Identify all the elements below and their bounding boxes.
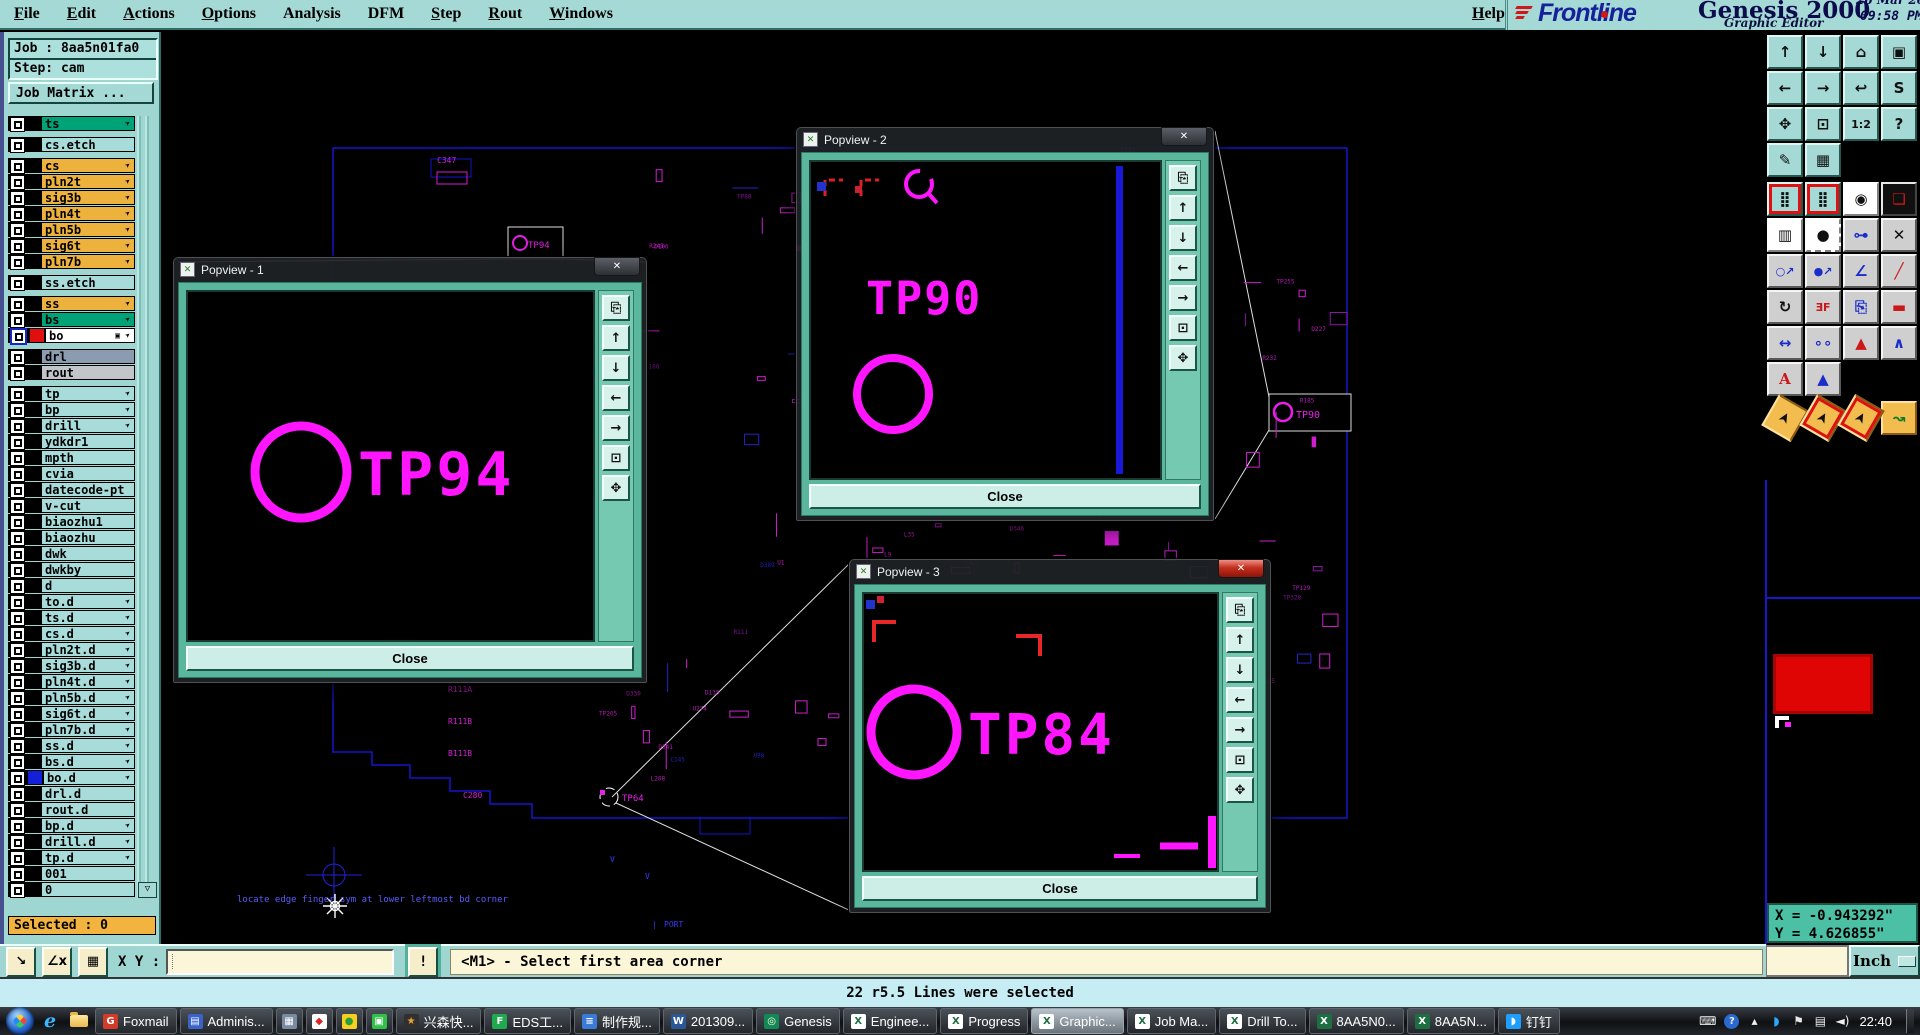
previous-view-button[interactable]: ↩ — [1843, 71, 1879, 105]
layer-row-sig6t.d[interactable]: sig6t.d➤ — [8, 706, 135, 721]
action-center-icon[interactable]: ⚑ — [1791, 1013, 1805, 1029]
layer-color-chip[interactable] — [27, 174, 41, 189]
layer-color-chip[interactable] — [27, 296, 41, 311]
layer-row-pln2t[interactable]: pln2t➤ — [8, 174, 135, 189]
zoom-in-button[interactable]: ⊡ — [1805, 107, 1841, 141]
pan-down-icon[interactable]: ↓ — [602, 355, 630, 381]
popview-2-titlebar[interactable]: ✕ Popview - 2 ✕ — [801, 127, 1209, 152]
layer-row-bp[interactable]: bp➤ — [8, 402, 135, 417]
detach-view-icon[interactable]: ⎘ — [1226, 597, 1254, 623]
layer-color-chip[interactable] — [27, 610, 41, 625]
layer-row-pln7b[interactable]: pln7b➤ — [8, 254, 135, 269]
layer-checkbox[interactable] — [10, 835, 25, 850]
pan-left-icon[interactable]: ← — [1169, 255, 1197, 281]
close-window-icon[interactable]: ✕ — [1218, 559, 1264, 578]
menu-item-step[interactable]: Step — [431, 5, 461, 23]
layer-row-pln5b.d[interactable]: pln5b.d➤ — [8, 690, 135, 705]
layer-color-chip[interactable] — [27, 850, 41, 865]
task-eds[interactable]: FEDS工... — [484, 1008, 571, 1034]
layer-color-chip[interactable] — [27, 434, 41, 449]
layer-checkbox[interactable] — [10, 451, 25, 466]
layer-row-cs[interactable]: cs➤ — [8, 158, 135, 173]
layer-row-bs[interactable]: bs➤ — [8, 312, 135, 327]
layer-row-v-cut[interactable]: v-cut — [8, 498, 135, 513]
layer-name[interactable]: 001 — [41, 866, 135, 881]
layer-row-rout[interactable]: rout — [8, 365, 135, 380]
layer-name[interactable]: datecode-pt — [41, 482, 135, 497]
task-foxmail[interactable]: GFoxmail — [95, 1008, 177, 1034]
layer-color-chip[interactable] — [27, 365, 41, 380]
layer-checkbox[interactable] — [10, 297, 25, 312]
help-tray-icon[interactable]: ? — [1724, 1014, 1739, 1029]
layer-color-chip[interactable] — [27, 658, 41, 673]
layer-row-bo[interactable]: bo➤▣ — [8, 328, 135, 343]
task-excel-progress[interactable]: XProgress — [940, 1008, 1028, 1034]
layer-checkbox[interactable] — [10, 771, 25, 786]
zoom-in-icon[interactable]: ⊡ — [1169, 315, 1197, 341]
layer-color-chip[interactable] — [27, 594, 41, 609]
layer-color-chip[interactable] — [27, 578, 41, 593]
units-toggle-button[interactable]: Inch — [1849, 945, 1920, 977]
select-pad-button[interactable]: ● — [1805, 218, 1841, 252]
layer-name[interactable]: tp.d➤ — [41, 850, 135, 865]
zoom-ratio-button[interactable]: 1:2 — [1843, 107, 1879, 141]
layer-checkbox[interactable] — [10, 579, 25, 594]
layer-checkbox[interactable] — [10, 595, 25, 610]
layer-name[interactable]: ts➤ — [41, 116, 135, 131]
zoom-in-icon[interactable]: ⊡ — [602, 445, 630, 471]
layer-name[interactable]: to.d➤ — [41, 594, 135, 609]
copy-to-layer-button[interactable]: ◉ — [1843, 182, 1879, 216]
layer-color-chip[interactable] — [27, 834, 41, 849]
popview-3-window[interactable]: ✕ Popview - 3 ✕ TP84 ⎘↑↓←→⊡✥ Close — [848, 558, 1272, 914]
layer-color-chip[interactable] — [27, 349, 41, 364]
layer-name[interactable]: sig6t.d➤ — [41, 706, 135, 721]
layer-row-pln5b[interactable]: pln5b➤ — [8, 222, 135, 237]
layer-row-ydkdr1[interactable]: ydkdr1 — [8, 434, 135, 449]
layer-color-chip[interactable] — [27, 254, 41, 269]
text-tool-button[interactable]: A — [1767, 362, 1803, 396]
menu-item-actions[interactable]: Actions — [123, 5, 175, 23]
layer-row-cvia[interactable]: cvia — [8, 466, 135, 481]
layer-checkbox[interactable] — [10, 643, 25, 658]
layer-name[interactable]: pln2t.d➤ — [41, 642, 135, 657]
layer-checkbox[interactable] — [10, 659, 25, 674]
layer-checkbox[interactable] — [10, 207, 25, 222]
layer-color-chip[interactable] — [27, 546, 41, 561]
layer-checkbox[interactable] — [10, 531, 25, 546]
layer-color-chip[interactable] — [27, 514, 41, 529]
layer-name[interactable]: mpth — [41, 450, 135, 465]
layer-checkbox[interactable] — [10, 175, 25, 190]
task-genesis[interactable]: ◎Genesis — [756, 1008, 840, 1034]
task-music-app[interactable]: ● — [336, 1008, 363, 1034]
dingtalk-tray-icon[interactable]: ◗ — [1769, 1013, 1783, 1029]
layer-name[interactable]: dwk — [41, 546, 135, 561]
triangle-marked-button[interactable]: ▲ — [1805, 362, 1841, 396]
select-cursor-button[interactable]: ➤ — [1761, 394, 1808, 442]
layer-list-scrollbar[interactable]: ▽ — [137, 116, 157, 898]
layer-checkbox[interactable] — [10, 755, 25, 770]
layer-checkbox[interactable] — [10, 499, 25, 514]
pan-up-icon[interactable]: ↑ — [1226, 627, 1254, 653]
layer-name[interactable]: ts.d➤ — [41, 610, 135, 625]
layer-name[interactable]: bp➤ — [41, 402, 135, 417]
layer-name[interactable]: drill➤ — [41, 418, 135, 433]
layer-color-chip[interactable] — [27, 402, 41, 417]
menu-item-dfm[interactable]: DFM — [368, 5, 404, 23]
net-list-b-button[interactable]: ⣿ — [1805, 182, 1841, 216]
layer-checkbox[interactable] — [10, 819, 25, 834]
task-excel-engineer[interactable]: XEnginee... — [843, 1008, 938, 1034]
layer-name[interactable]: sig3b➤ — [41, 190, 135, 205]
popview-1-close-button[interactable]: Close — [186, 646, 634, 671]
pan-right-icon[interactable]: → — [1226, 717, 1254, 743]
menu-item-options[interactable]: Options — [202, 5, 256, 23]
layer-checkbox[interactable] — [10, 739, 25, 754]
task-video-app[interactable]: ▣ — [366, 1008, 393, 1034]
layer-checkbox[interactable] — [10, 467, 25, 482]
zoom-corner-button[interactable]: ↘ — [6, 947, 36, 977]
show-hidden-icons[interactable]: ▴ — [1747, 1013, 1761, 1029]
layer-name[interactable]: cvia — [41, 466, 135, 481]
layer-name[interactable]: bs.d➤ — [41, 754, 135, 769]
layer-color-chip[interactable] — [27, 158, 41, 173]
layer-row-rout.d[interactable]: rout.d — [8, 802, 135, 817]
layer-row-tp[interactable]: tp➤ — [8, 386, 135, 401]
alert-button[interactable]: ! — [408, 947, 438, 977]
layer-row-ts[interactable]: ts➤ — [8, 116, 135, 131]
layer-checkbox[interactable] — [10, 276, 25, 291]
layer-color-chip[interactable] — [27, 562, 41, 577]
layer-checkbox[interactable] — [10, 675, 25, 690]
layer-row-cs.d[interactable]: cs.d➤ — [8, 626, 135, 641]
query-button[interactable]: ? — [1881, 107, 1917, 141]
layer-row-sig3b.d[interactable]: sig3b.d➤ — [8, 658, 135, 673]
close-window-icon[interactable]: ✕ — [1161, 127, 1207, 146]
layer-name[interactable]: pln2t➤ — [41, 174, 135, 189]
grid-toggle-button[interactable]: ▦ — [1805, 143, 1841, 177]
layer-row-bo.d[interactable]: bo.d➤ — [8, 770, 135, 785]
pan-up-icon[interactable]: ↑ — [1169, 195, 1197, 221]
layer-name[interactable]: tp➤ — [41, 386, 135, 401]
layer-checkbox[interactable] — [10, 223, 25, 238]
pan-right-button[interactable]: → — [1805, 71, 1841, 105]
layer-name[interactable]: pln5b.d➤ — [41, 690, 135, 705]
layer-checkbox[interactable] — [10, 313, 25, 328]
layer-checkbox[interactable] — [10, 117, 25, 132]
delete-item-button[interactable]: ✕ — [1881, 218, 1917, 252]
internet-explorer-icon[interactable]: e — [37, 1008, 63, 1034]
layer-color-chip[interactable] — [28, 771, 42, 784]
layer-checkbox[interactable] — [10, 239, 25, 254]
layer-name[interactable]: rout.d — [41, 802, 135, 817]
measure-width-button[interactable]: ↔ — [1767, 326, 1803, 360]
layer-checkbox[interactable] — [10, 563, 25, 578]
layer-checkbox[interactable] — [10, 366, 25, 381]
layer-row-ss.etch[interactable]: ss.etch — [8, 275, 135, 290]
layer-color-chip[interactable] — [27, 386, 41, 401]
scroll-down-icon[interactable]: ▽ — [138, 882, 157, 898]
layer-color-chip[interactable] — [27, 238, 41, 253]
layer-name[interactable]: ydkdr1 — [41, 434, 135, 449]
layer-color-chip[interactable] — [27, 498, 41, 513]
pan-right-icon[interactable]: → — [602, 415, 630, 441]
layer-color-chip[interactable] — [27, 116, 41, 131]
layer-row-biaozhu[interactable]: biaozhu — [8, 530, 135, 545]
layer-checkbox[interactable] — [10, 403, 25, 418]
layer-name[interactable]: ss.d➤ — [41, 738, 135, 753]
task-word-doc[interactable]: W201309... — [663, 1008, 753, 1034]
net-list-a-button[interactable]: ⣿ — [1767, 182, 1803, 216]
layer-color-chip[interactable] — [27, 530, 41, 545]
pan-left-button[interactable]: ← — [1767, 71, 1803, 105]
layer-name[interactable]: pln7b➤ — [41, 254, 135, 269]
zoom-out-icon[interactable]: ✥ — [1226, 777, 1254, 803]
pan-left-icon[interactable]: ← — [602, 385, 630, 411]
zoom-out-button[interactable]: ✥ — [1767, 107, 1803, 141]
pan-right-icon[interactable]: → — [1169, 285, 1197, 311]
popview-1-window[interactable]: ✕ Popview - 1 ✕ TP94 ⎘↑↓←→⊡✥ Close — [172, 256, 648, 684]
layer-name[interactable]: pln5b➤ — [41, 222, 135, 237]
layer-color-chip[interactable] — [27, 626, 41, 641]
layer-color-chip[interactable] — [27, 690, 41, 705]
popview-2-window[interactable]: ✕ Popview - 2 ✕ TP90 ⎘↑↓←→⊡✥ Close — [795, 126, 1215, 522]
layer-color-chip[interactable] — [27, 642, 41, 657]
layer-checkbox[interactable] — [10, 803, 25, 818]
layer-color-chip[interactable] — [27, 706, 41, 721]
task-8aa5n0[interactable]: X8AA5N0... — [1309, 1008, 1404, 1034]
layer-row-pln4t[interactable]: pln4t➤ — [8, 206, 135, 221]
zoom-out-icon[interactable]: ✥ — [602, 475, 630, 501]
task-job-manager[interactable]: XJob Ma... — [1127, 1008, 1216, 1034]
pan-down-icon[interactable]: ↓ — [1169, 225, 1197, 251]
select-net-button[interactable]: ↝ — [1881, 401, 1917, 435]
layer-name[interactable]: ss.etch — [41, 275, 135, 290]
layer-color-chip[interactable] — [27, 882, 41, 897]
layer-row-d[interactable]: d — [8, 578, 135, 593]
layer-checkbox[interactable] — [10, 435, 25, 450]
layer-name[interactable]: bo.d➤ — [43, 770, 135, 785]
layer-row-ss[interactable]: ss➤ — [8, 296, 135, 311]
layer-checkbox[interactable] — [10, 328, 27, 345]
layer-color-chip[interactable] — [27, 674, 41, 689]
task-dingtalk[interactable]: ◗钉钉 — [1498, 1008, 1560, 1034]
layer-row-0[interactable]: 0 — [8, 882, 135, 897]
layer-checkbox[interactable] — [10, 611, 25, 626]
layer-checkbox[interactable] — [10, 787, 25, 802]
menu-item-edit[interactable]: Edit — [67, 5, 96, 23]
pan-left-icon[interactable]: ← — [1226, 687, 1254, 713]
serpentine-route-button[interactable]: S — [1881, 71, 1917, 105]
layer-color-chip[interactable] — [27, 190, 41, 205]
layer-row-sig3b[interactable]: sig3b➤ — [8, 190, 135, 205]
layer-color-chip[interactable] — [27, 418, 41, 433]
layer-color-chip[interactable] — [27, 137, 41, 152]
layer-row-dwkby[interactable]: dwkby — [8, 562, 135, 577]
task-calculator[interactable]: ▦ — [276, 1008, 303, 1034]
task-xingsen[interactable]: ★兴森快... — [396, 1008, 482, 1034]
duplicate-tool-button[interactable]: ⎘ — [1843, 290, 1879, 324]
angle-tool-button[interactable]: ∠ — [1843, 254, 1879, 288]
layer-name[interactable]: drl.d — [41, 786, 135, 801]
popview-3-close-button[interactable]: Close — [862, 876, 1258, 901]
popview-3-canvas[interactable]: TP84 — [862, 592, 1219, 872]
layer-checkbox[interactable] — [10, 691, 25, 706]
layer-row-drl.d[interactable]: drl.d — [8, 786, 135, 801]
stretch-line-button[interactable]: ▬ — [1881, 290, 1917, 324]
layer-name[interactable]: cs➤ — [41, 158, 135, 173]
layer-row-ss.d[interactable]: ss.d➤ — [8, 738, 135, 753]
network-tray-icon[interactable]: ▤ — [1813, 1013, 1827, 1029]
pan-down-button[interactable]: ↓ — [1805, 35, 1841, 69]
ruler-measure-button[interactable]: ▥ — [1767, 218, 1803, 252]
layer-row-datecode-pt[interactable]: datecode-pt — [8, 482, 135, 497]
copy-point-button[interactable]: ●↗ — [1805, 254, 1841, 288]
layer-row-cs.etch[interactable]: cs.etch — [8, 137, 135, 152]
layer-checkbox[interactable] — [10, 255, 25, 270]
select-touching-button[interactable]: ➤ — [1837, 394, 1884, 442]
layer-color-chip[interactable] — [27, 450, 41, 465]
slope-line-button[interactable]: ╱ — [1881, 254, 1917, 288]
layer-color-chip[interactable] — [27, 754, 41, 769]
task-drill-tool[interactable]: XDrill To... — [1219, 1008, 1305, 1034]
layer-checkbox[interactable] — [10, 191, 25, 206]
layer-name[interactable]: drl — [41, 349, 135, 364]
layer-row-sig6t[interactable]: sig6t➤ — [8, 238, 135, 253]
layer-name[interactable]: pln4t➤ — [41, 206, 135, 221]
popview-2-close-button[interactable]: Close — [809, 484, 1201, 509]
zoom-in-icon[interactable]: ⊡ — [1226, 747, 1254, 773]
setup-tools-button[interactable]: ✎ — [1767, 143, 1803, 177]
pan-up-button[interactable]: ↑ — [1767, 35, 1803, 69]
explorer-folder-icon[interactable] — [66, 1008, 92, 1034]
layer-checkbox[interactable] — [10, 419, 25, 434]
triangle-outline-button[interactable]: ∧ — [1881, 326, 1917, 360]
layer-name[interactable]: pln7b.d➤ — [41, 722, 135, 737]
popview-1-canvas[interactable]: TP94 — [186, 290, 595, 642]
layer-checkbox[interactable] — [10, 483, 25, 498]
layer-checkbox[interactable] — [10, 851, 25, 866]
transform-pad-button[interactable]: ❏ — [1881, 182, 1917, 216]
task-graphic-editor[interactable]: XGraphic... — [1031, 1008, 1123, 1034]
layer-row-drl[interactable]: drl — [8, 349, 135, 364]
layer-color-chip[interactable] — [27, 482, 41, 497]
overlap-circles-button[interactable]: ∘∘ — [1805, 326, 1841, 360]
layer-checkbox[interactable] — [10, 138, 25, 153]
popview-1-titlebar[interactable]: ✕ Popview - 1 ✕ — [178, 257, 642, 282]
layer-color-chip[interactable] — [27, 206, 41, 221]
layer-checkbox[interactable] — [10, 159, 25, 174]
layer-name[interactable]: 0 — [41, 882, 135, 897]
menu-item-file[interactable]: File — [14, 5, 40, 23]
volume-tray-icon[interactable]: ◄) — [1835, 1013, 1849, 1029]
layer-name[interactable]: biaozhu — [41, 530, 135, 545]
layer-name[interactable]: ss➤ — [41, 296, 135, 311]
pan-down-icon[interactable]: ↓ — [1226, 657, 1254, 683]
close-window-icon[interactable]: ✕ — [594, 257, 640, 276]
layer-checkbox[interactable] — [10, 627, 25, 642]
layer-row-to.d[interactable]: to.d➤ — [8, 594, 135, 609]
layer-color-chip[interactable] — [27, 802, 41, 817]
menu-item-windows[interactable]: Windows — [549, 5, 613, 23]
layer-row-drill[interactable]: drill➤ — [8, 418, 135, 433]
layer-color-chip[interactable] — [27, 818, 41, 833]
task-stock-app[interactable]: ◆ — [306, 1008, 333, 1034]
detach-view-icon[interactable]: ⎘ — [1169, 165, 1197, 191]
menu-item-rout[interactable]: Rout — [488, 5, 522, 23]
layer-name[interactable]: sig6t➤ — [41, 238, 135, 253]
layer-color-chip[interactable] — [27, 466, 41, 481]
layer-checkbox[interactable] — [10, 350, 25, 365]
show-desktop-button[interactable] — [1906, 1009, 1914, 1033]
layer-checkbox[interactable] — [10, 547, 25, 562]
layer-name[interactable]: sig3b.d➤ — [41, 658, 135, 673]
popview-2-canvas[interactable]: TP90 — [809, 160, 1162, 480]
layer-checkbox[interactable] — [10, 723, 25, 738]
layer-row-001[interactable]: 001 — [8, 866, 135, 881]
layer-name[interactable]: bo➤▣ — [45, 328, 135, 343]
layer-row-dwk[interactable]: dwk — [8, 546, 135, 561]
zoom-home-button[interactable]: ⌂ — [1843, 35, 1879, 69]
xy-input[interactable] — [166, 949, 394, 975]
layer-color-chip[interactable] — [27, 222, 41, 237]
layer-checkbox[interactable] — [10, 387, 25, 402]
layer-row-ts.d[interactable]: ts.d➤ — [8, 610, 135, 625]
layer-name[interactable]: dwkby — [41, 562, 135, 577]
layer-name[interactable]: bs➤ — [41, 312, 135, 327]
layer-row-drill.d[interactable]: drill.d➤ — [8, 834, 135, 849]
layer-name[interactable]: d — [41, 578, 135, 593]
layer-color-chip[interactable] — [30, 329, 44, 342]
layer-checkbox[interactable] — [10, 515, 25, 530]
layer-checkbox[interactable] — [10, 867, 25, 882]
layer-row-bs.d[interactable]: bs.d➤ — [8, 754, 135, 769]
layer-name[interactable]: biaozhu1 — [41, 514, 135, 529]
layer-name[interactable]: v-cut — [41, 498, 135, 513]
keyboard-tray-icon[interactable]: ⌨ — [1699, 1013, 1716, 1029]
layer-name[interactable]: cs.d➤ — [41, 626, 135, 641]
task-8aa5n[interactable]: X8AA5N... — [1407, 1008, 1495, 1034]
view-window-button[interactable]: ▣ — [1881, 35, 1917, 69]
layer-row-pln4t.d[interactable]: pln4t.d➤ — [8, 674, 135, 689]
layer-row-bp.d[interactable]: bp.d➤ — [8, 818, 135, 833]
layer-color-chip[interactable] — [27, 786, 41, 801]
layer-color-chip[interactable] — [27, 722, 41, 737]
measure-angle-button[interactable]: ∠x — [42, 947, 72, 977]
detach-view-icon[interactable]: ⎘ — [602, 295, 630, 321]
layer-name[interactable]: drill.d➤ — [41, 834, 135, 849]
start-button[interactable] — [6, 1007, 34, 1035]
task-spec-doc[interactable]: ≡制作规... — [574, 1008, 660, 1034]
layer-color-chip[interactable] — [27, 738, 41, 753]
layer-checkbox[interactable] — [10, 883, 25, 898]
layer-color-chip[interactable] — [27, 866, 41, 881]
layer-row-pln7b.d[interactable]: pln7b.d➤ — [8, 722, 135, 737]
mirror-tool-button[interactable]: ƎF — [1805, 290, 1841, 324]
pan-up-icon[interactable]: ↑ — [602, 325, 630, 351]
layer-color-chip[interactable] — [27, 312, 41, 327]
rotate-tool-button[interactable]: ↻ — [1767, 290, 1803, 324]
move-point-button[interactable]: ○↗ — [1767, 254, 1803, 288]
layer-color-chip[interactable] — [27, 275, 41, 290]
grid-table-button[interactable]: ▦ — [78, 947, 108, 977]
layer-name[interactable]: rout — [41, 365, 135, 380]
layer-row-pln2t.d[interactable]: pln2t.d➤ — [8, 642, 135, 657]
menu-item-analysis[interactable]: Analysis — [283, 5, 341, 23]
select-inside-button[interactable]: ➤ — [1799, 394, 1846, 442]
task-administrator[interactable]: ▤Adminis... — [180, 1008, 273, 1034]
